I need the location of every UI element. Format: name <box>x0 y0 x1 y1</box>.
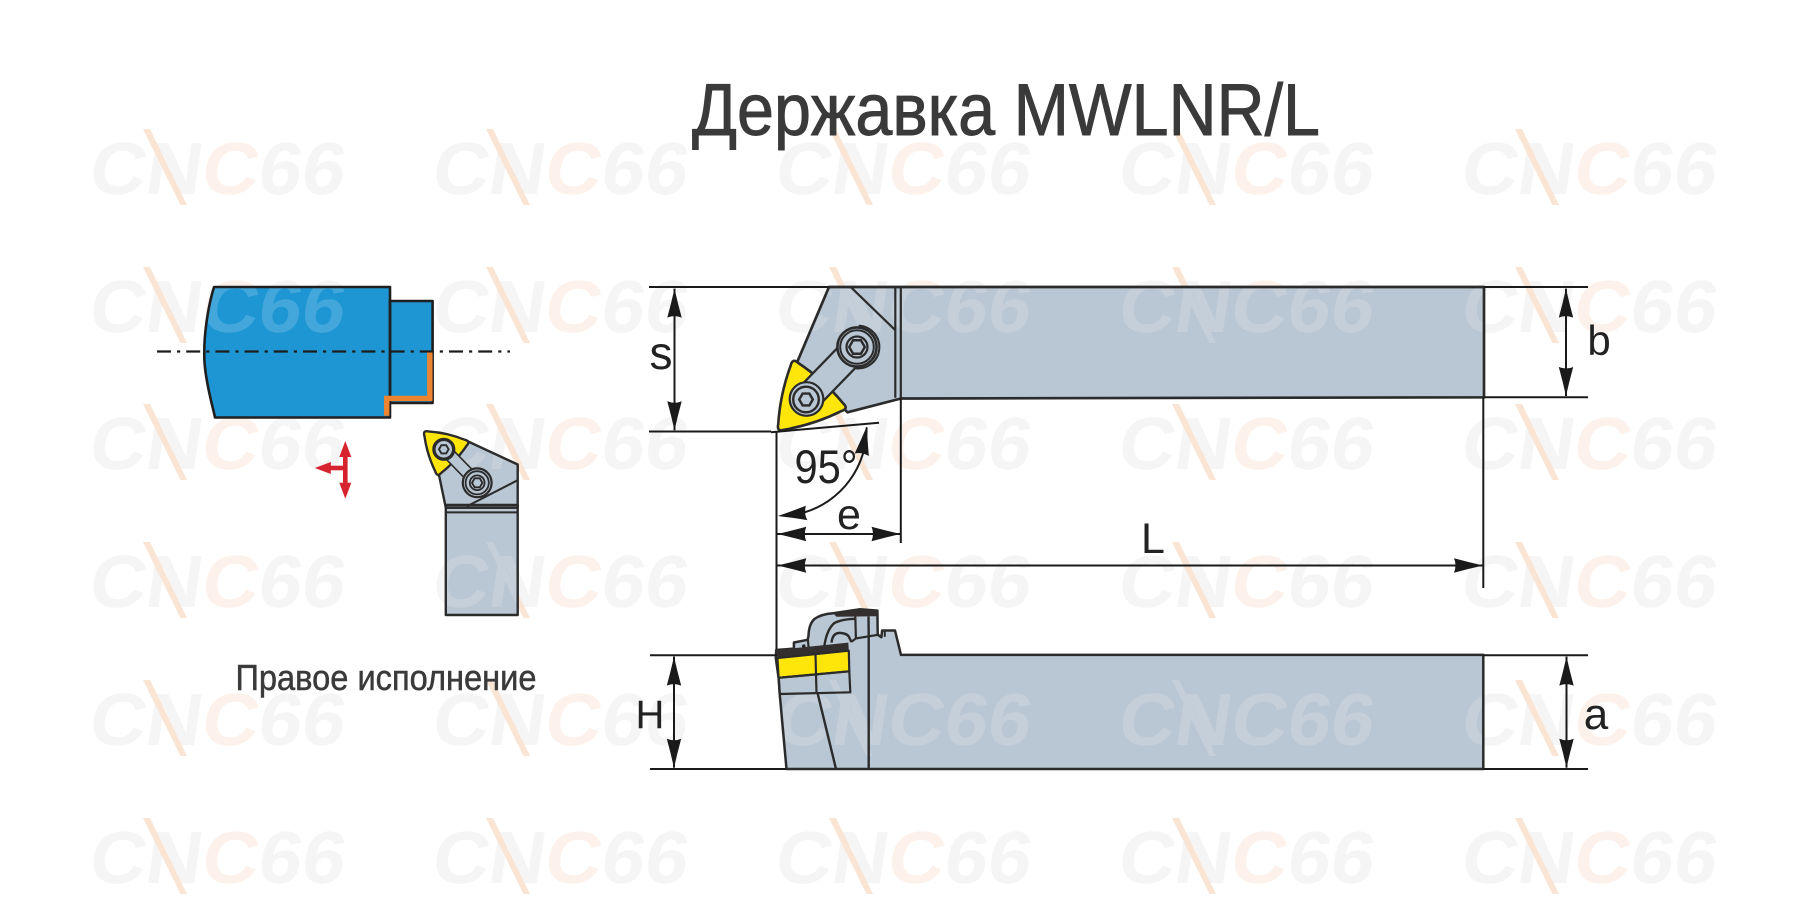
svg-text:e: e <box>837 491 861 539</box>
svg-text:H: H <box>636 693 665 737</box>
svg-text:95°: 95° <box>795 440 858 493</box>
svg-text:a: a <box>1584 690 1609 739</box>
svg-text:b: b <box>1587 317 1610 364</box>
svg-text:Правое исполнение: Правое исполнение <box>236 657 537 698</box>
svg-text:Державка MWLNR/L: Державка MWLNR/L <box>692 70 1320 151</box>
svg-text:L: L <box>1141 515 1165 563</box>
svg-text:s: s <box>650 327 673 379</box>
